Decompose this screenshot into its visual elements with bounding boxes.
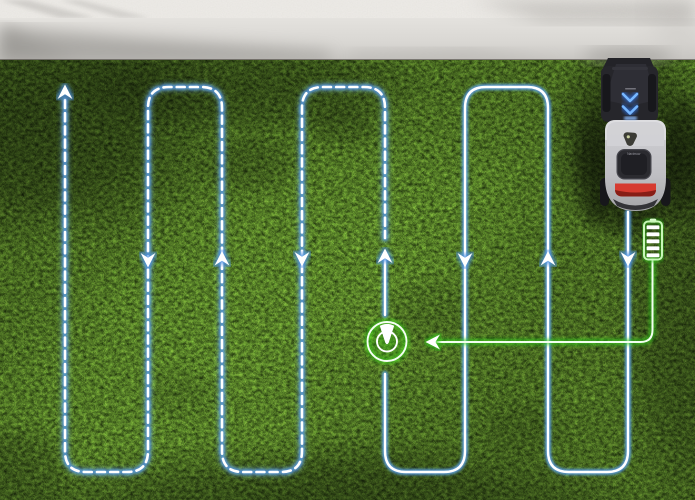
svg-text:Navimow: Navimow [627,152,641,156]
